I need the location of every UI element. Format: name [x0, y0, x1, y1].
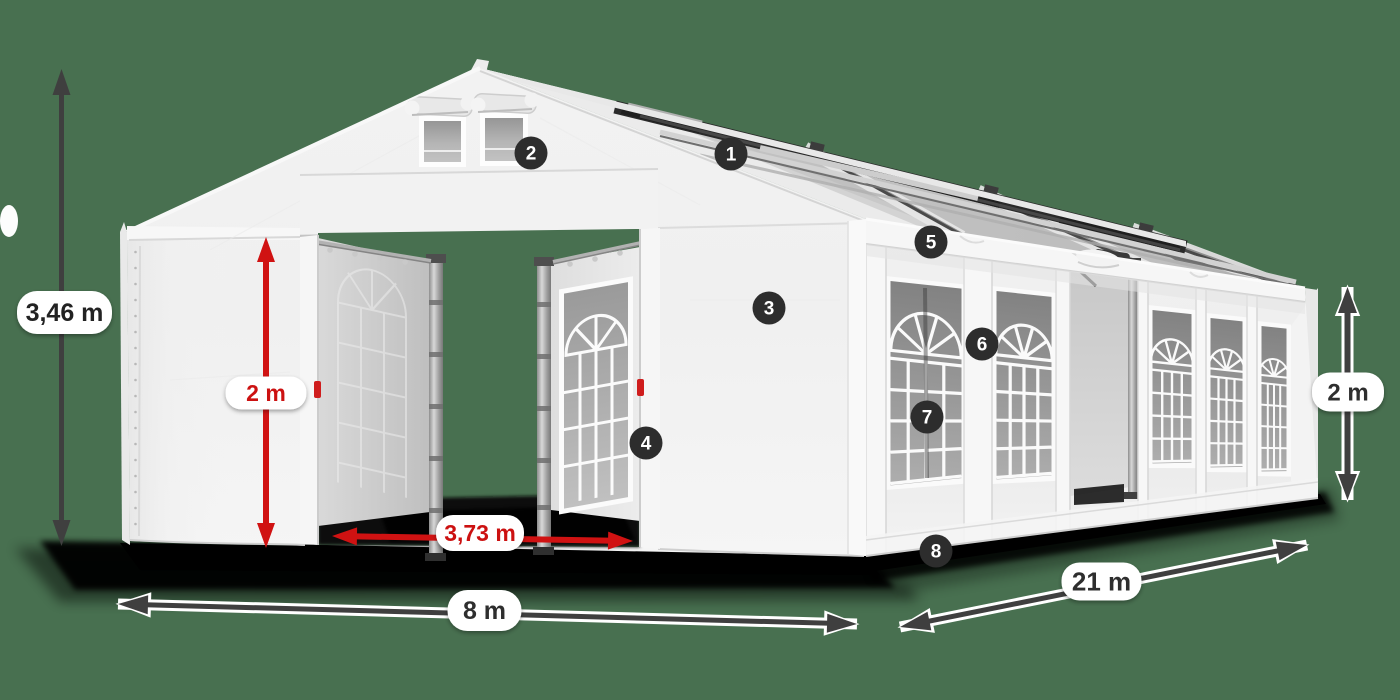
svg-text:5: 5	[926, 233, 937, 254]
svg-text:1: 1	[726, 145, 737, 166]
svg-text:3: 3	[764, 299, 775, 320]
svg-text:7: 7	[922, 408, 933, 429]
svg-text:6: 6	[977, 335, 988, 356]
svg-text:8 m: 8 m	[463, 597, 506, 625]
svg-text:2: 2	[526, 144, 537, 165]
svg-text:2 m: 2 m	[246, 380, 286, 406]
svg-text:21 m: 21 m	[1072, 567, 1131, 597]
svg-text:8: 8	[931, 542, 942, 563]
svg-text:2 m: 2 m	[1327, 379, 1368, 406]
svg-text:3,73 m: 3,73 m	[444, 520, 516, 546]
svg-text:4: 4	[641, 434, 652, 455]
svg-text:3,46 m: 3,46 m	[26, 299, 104, 327]
